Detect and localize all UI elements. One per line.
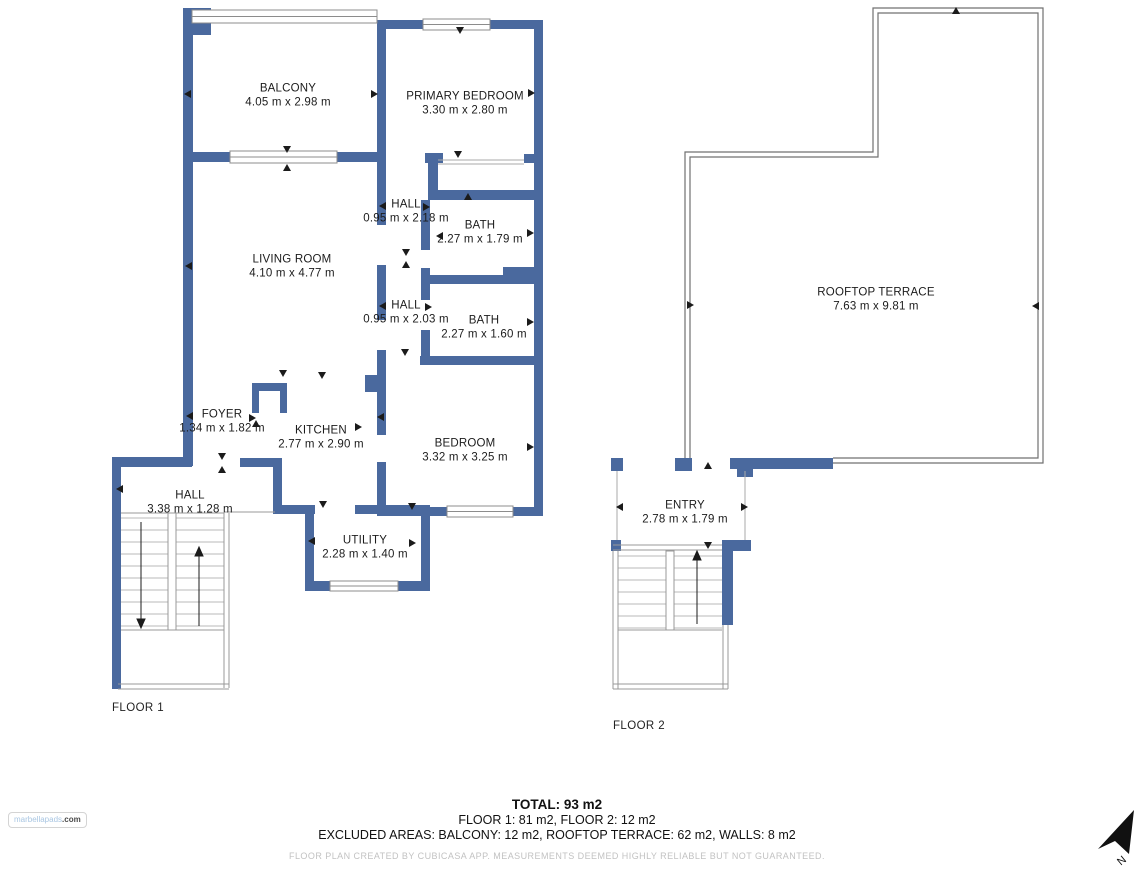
logo-brand-text: marbellapads bbox=[14, 815, 62, 824]
floor-areas: FLOOR 1: 81 m2, FLOOR 2: 12 m2 bbox=[0, 813, 1114, 827]
room-label-utility: UTILITY 2.28 m x 1.40 m bbox=[322, 535, 407, 562]
floor1-staircase bbox=[118, 512, 275, 689]
room-dims: 2.28 m x 1.40 m bbox=[322, 548, 407, 562]
room-dims: 2.27 m x 1.79 m bbox=[437, 233, 522, 247]
room-label-bath-upper: BATH 2.27 m x 1.79 m bbox=[437, 220, 522, 247]
room-label-bath-lower: BATH 2.27 m x 1.60 m bbox=[441, 315, 526, 342]
disclaimer-note: FLOOR PLAN CREATED BY CUBICASA APP. MEAS… bbox=[0, 851, 1114, 861]
excluded-areas: EXCLUDED AREAS: BALCONY: 12 m2, ROOFTOP … bbox=[0, 828, 1114, 842]
room-name: HALL bbox=[147, 490, 232, 504]
stair-stringer bbox=[168, 513, 176, 630]
room-label-hall-lower: HALL 3.38 m x 1.28 m bbox=[147, 490, 232, 517]
room-label-hall-upper: HALL 0.95 m x 2.18 m bbox=[363, 199, 448, 226]
floor2-plan bbox=[611, 8, 1043, 689]
room-dims: 3.30 m x 2.80 m bbox=[406, 104, 524, 118]
room-name: KITCHEN bbox=[278, 425, 363, 439]
stair-direction-arrows bbox=[693, 551, 701, 624]
room-dims: 4.05 m x 2.98 m bbox=[245, 96, 330, 110]
utility-window bbox=[330, 581, 398, 591]
room-name: BALCONY bbox=[245, 83, 330, 97]
rooftop-terrace-outline bbox=[685, 8, 1043, 463]
room-dims: 2.78 m x 1.79 m bbox=[642, 513, 727, 527]
room-label-rooftop-terrace: ROOFTOP TERRACE 7.63 m x 9.81 m bbox=[817, 287, 934, 314]
room-name: LIVING ROOM bbox=[249, 254, 334, 268]
room-name: BATH bbox=[441, 315, 526, 329]
room-name: BEDROOM bbox=[422, 438, 507, 452]
room-label-primary-bedroom: PRIMARY BEDROOM 3.30 m x 2.80 m bbox=[406, 91, 524, 118]
room-name: PRIMARY BEDROOM bbox=[406, 91, 524, 105]
room-dims: 0.95 m x 2.03 m bbox=[363, 313, 448, 327]
logo-tld-text: .com bbox=[62, 815, 81, 824]
floor1-title: FLOOR 1 bbox=[112, 702, 164, 714]
marbellapads-logo-badge[interactable]: marbellapads.com bbox=[8, 812, 87, 828]
room-label-balcony: BALCONY 4.05 m x 2.98 m bbox=[245, 83, 330, 110]
room-label-entry: ENTRY 2.78 m x 1.79 m bbox=[642, 500, 727, 527]
closet-slider-lines bbox=[438, 160, 524, 164]
living-balcony-window bbox=[230, 151, 337, 163]
room-dims: 3.32 m x 3.25 m bbox=[422, 451, 507, 465]
north-label: N bbox=[1115, 854, 1129, 868]
bedroom-window bbox=[447, 506, 513, 517]
room-label-kitchen: KITCHEN 2.77 m x 2.90 m bbox=[278, 425, 363, 452]
room-dims: 2.27 m x 1.60 m bbox=[441, 328, 526, 342]
room-dims: 1.34 m x 1.82 m bbox=[179, 422, 264, 436]
stair-stringer bbox=[666, 551, 674, 630]
balcony-railing-window bbox=[192, 10, 377, 23]
floor2-walls bbox=[611, 458, 833, 625]
room-name: BATH bbox=[437, 220, 522, 234]
room-dims: 7.63 m x 9.81 m bbox=[817, 300, 934, 314]
floor-plan-page: N BALCONY 4.05 m x 2.98 m PRIMARY BEDROO… bbox=[0, 0, 1143, 872]
room-label-bedroom: BEDROOM 3.32 m x 3.25 m bbox=[422, 438, 507, 465]
floor2-staircase bbox=[613, 551, 728, 689]
room-name: ENTRY bbox=[642, 500, 727, 514]
room-dims: 2.77 m x 2.90 m bbox=[278, 438, 363, 452]
summary-footer: TOTAL: 93 m2 FLOOR 1: 81 m2, FLOOR 2: 12… bbox=[0, 797, 1114, 861]
room-name: HALL bbox=[363, 300, 448, 314]
room-dims: 4.10 m x 4.77 m bbox=[249, 267, 334, 281]
room-label-hall-mid: HALL 0.95 m x 2.03 m bbox=[363, 300, 448, 327]
room-dims: 3.38 m x 1.28 m bbox=[147, 503, 232, 517]
room-name: FOYER bbox=[179, 409, 264, 423]
room-name: ROOFTOP TERRACE bbox=[817, 287, 934, 301]
entry-stair-boundary bbox=[613, 545, 722, 550]
floor2-title: FLOOR 2 bbox=[613, 720, 665, 732]
room-dims: 0.95 m x 2.18 m bbox=[363, 212, 448, 226]
room-name: UTILITY bbox=[322, 535, 407, 549]
primary-bedroom-window bbox=[423, 19, 490, 30]
floor-plan-svg: N bbox=[0, 0, 1143, 872]
room-label-living-room: LIVING ROOM 4.10 m x 4.77 m bbox=[249, 254, 334, 281]
total-area: TOTAL: 93 m2 bbox=[0, 797, 1114, 812]
understair-outline bbox=[118, 512, 275, 689]
room-label-foyer: FOYER 1.34 m x 1.82 m bbox=[179, 409, 264, 436]
room-name: HALL bbox=[363, 199, 448, 213]
